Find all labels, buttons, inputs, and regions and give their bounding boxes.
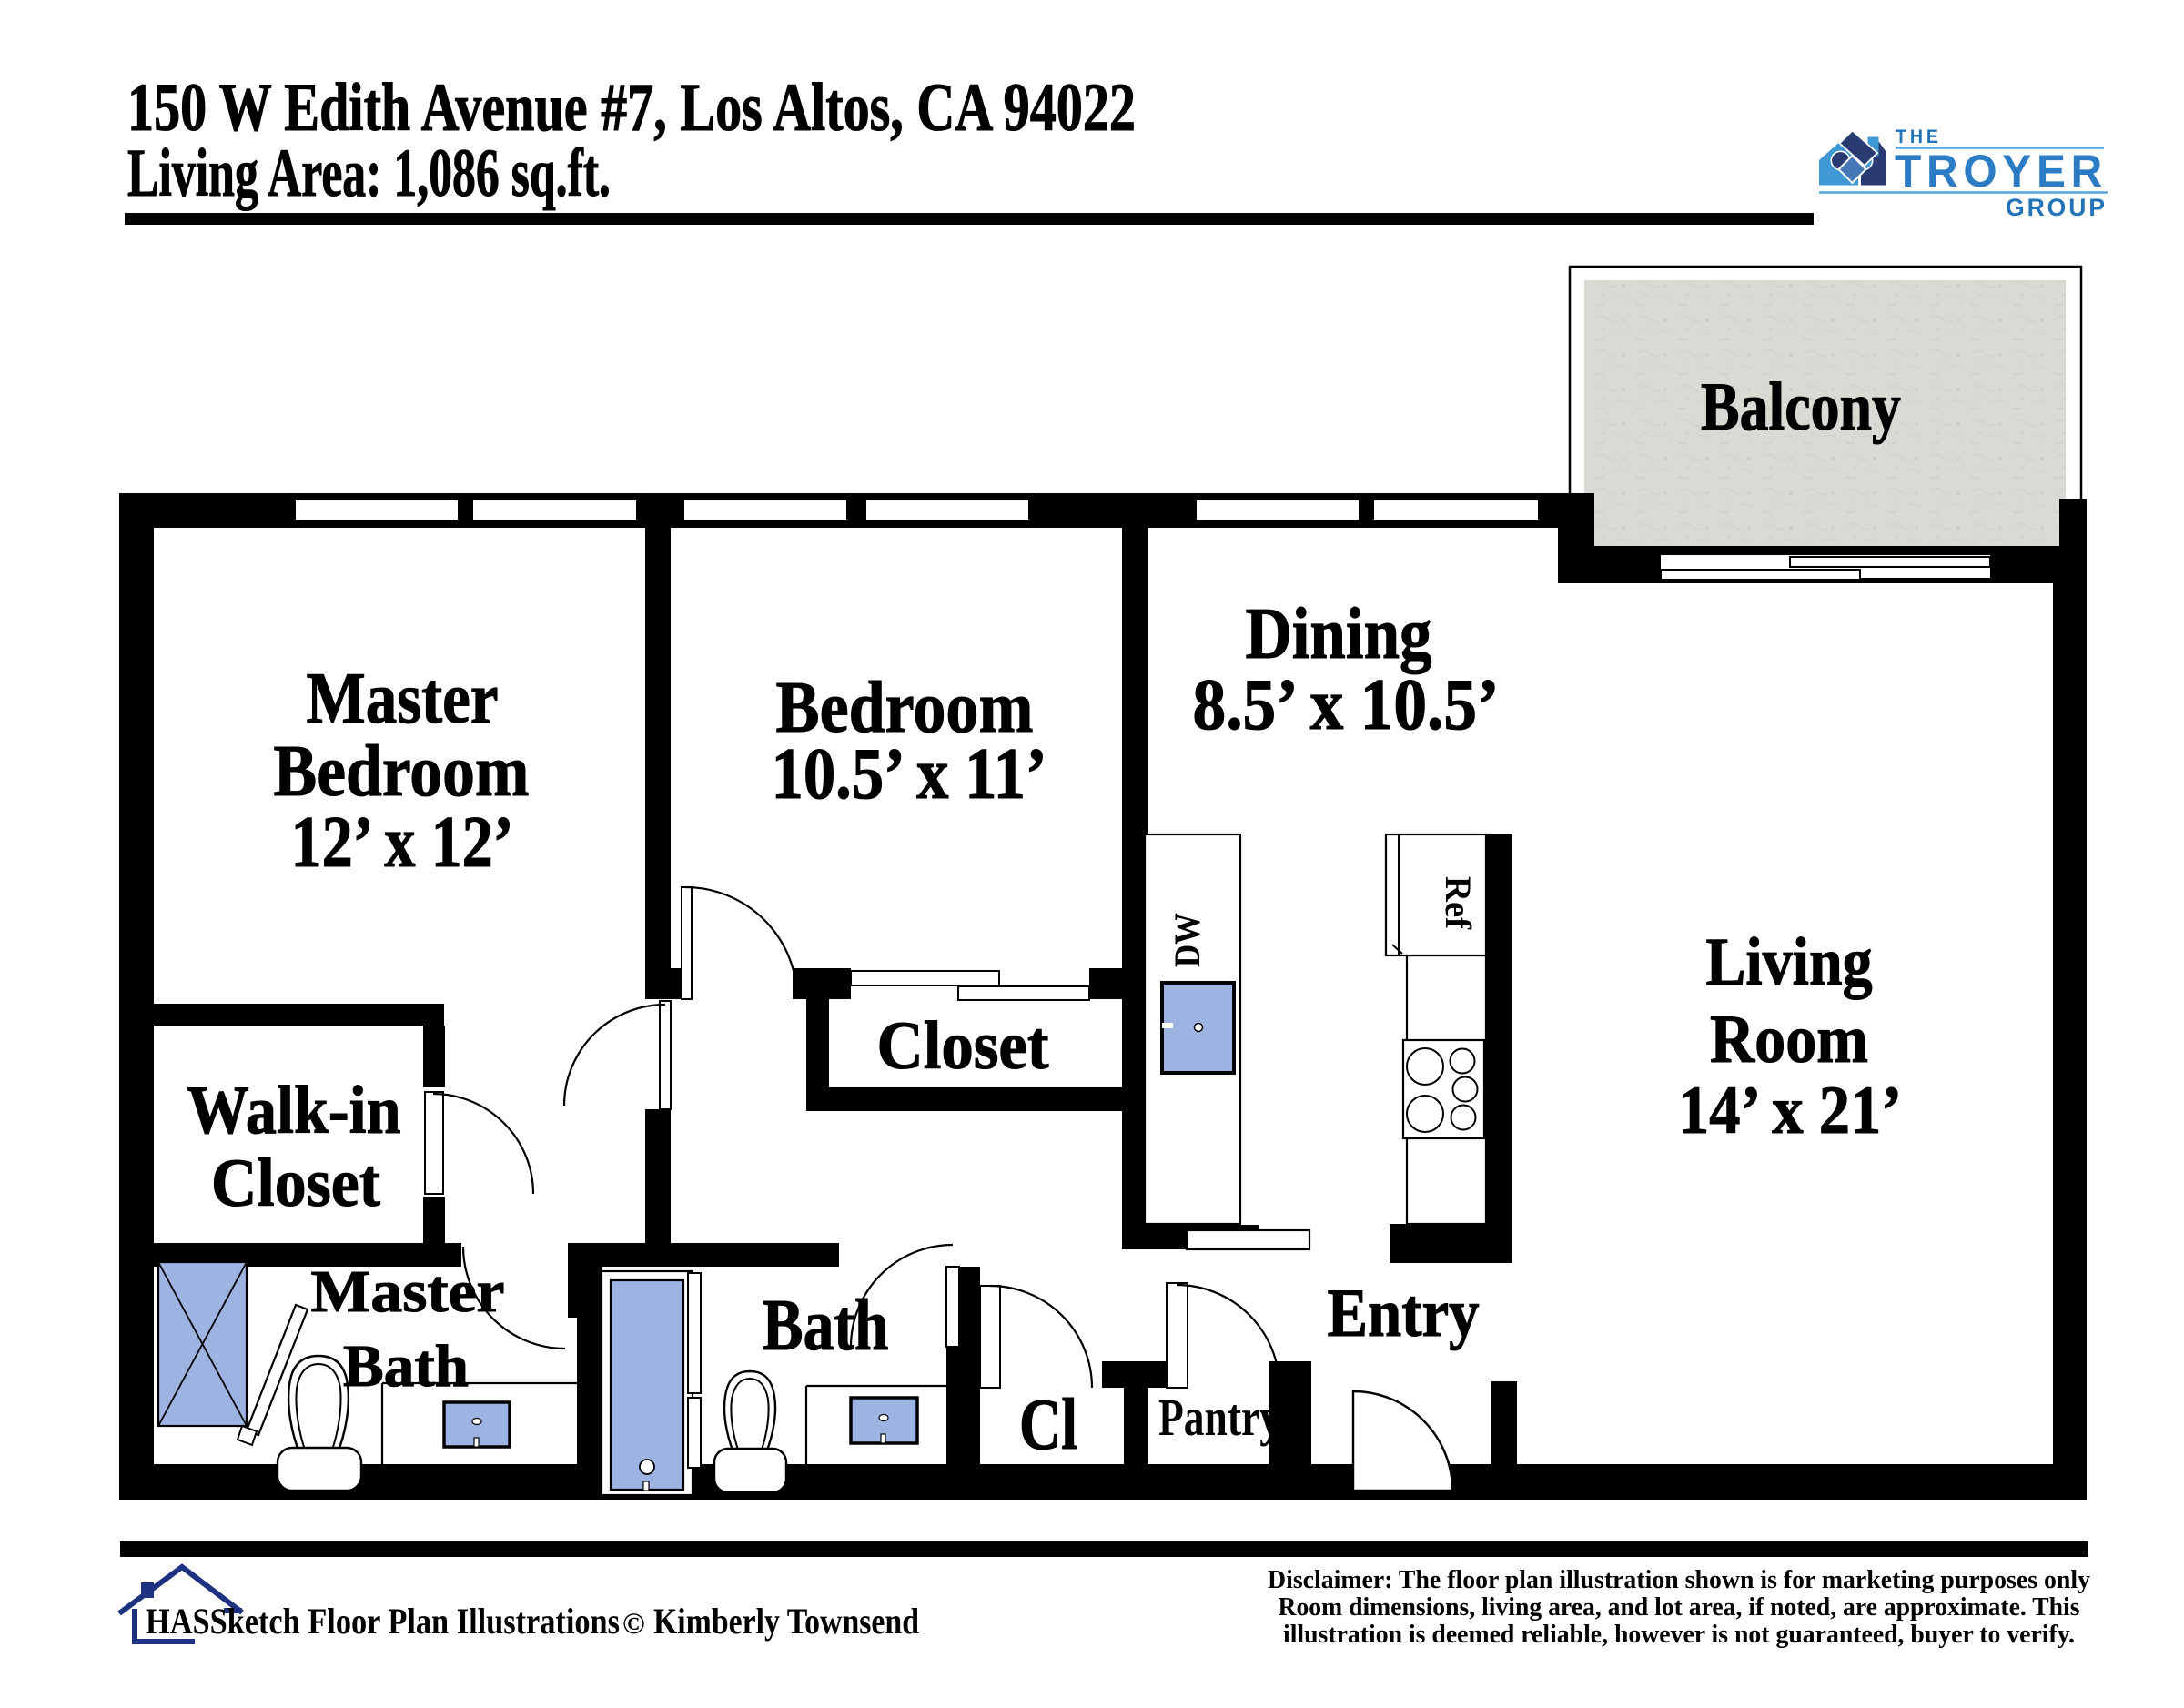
svg-text:Room dimensions, living area,: Room dimensions, living area, and lot ar… (1279, 1593, 2080, 1622)
svg-text:Bedroom: Bedroom (274, 732, 530, 812)
svg-text:Closet: Closet (877, 1008, 1049, 1084)
svg-text:150 W Edith Avenue #7, Los Alt: 150 W Edith Avenue #7, Los Altos, CA 940… (127, 70, 1136, 146)
svg-text:TROYER: TROYER (1895, 146, 2108, 197)
svg-text:14’ x 21’: 14’ x 21’ (1678, 1073, 1902, 1148)
svg-text:©: © (622, 1608, 645, 1641)
svg-text:illustration is deemed reliabl: illustration is deemed reliable, however… (1283, 1621, 2075, 1649)
svg-text:Living: Living (1706, 925, 1873, 1000)
svg-text:T H E: T H E (1896, 126, 1938, 147)
svg-text:8.5’ x 10.5’: 8.5’ x 10.5’ (1193, 665, 1500, 745)
svg-text:Bath: Bath (763, 1286, 889, 1366)
svg-text:Bath: Bath (343, 1333, 469, 1400)
svg-text:10.5’ x 11’: 10.5’ x 11’ (772, 734, 1047, 814)
svg-text:Closet: Closet (211, 1146, 380, 1221)
svg-text:Living Area: 1,086 sq.ft.: Living Area: 1,086 sq.ft. (127, 136, 611, 211)
svg-text:Balcony: Balcony (1701, 369, 1901, 445)
svg-text:Master: Master (311, 1258, 505, 1325)
svg-text:Master: Master (307, 659, 499, 739)
svg-text:Dining: Dining (1246, 594, 1432, 674)
svg-text:DW: DW (1167, 913, 1208, 967)
svg-text:GROUP: GROUP (2006, 194, 2108, 221)
svg-text:Entry: Entry (1328, 1276, 1480, 1351)
svg-text:Ref: Ref (1438, 876, 1479, 930)
svg-text:Cl: Cl (1019, 1385, 1077, 1465)
svg-text:HASSketch Floor Plan Illustrat: HASSketch Floor Plan Illustrations (146, 1601, 620, 1642)
svg-text:12’ x 12’: 12’ x 12’ (291, 803, 514, 883)
svg-text:Room: Room (1710, 1002, 1868, 1077)
svg-text:Kimberly Townsend: Kimberly Townsend (653, 1601, 919, 1642)
svg-text:Walk-in: Walk-in (187, 1073, 401, 1148)
svg-text:Pantry: Pantry (1158, 1388, 1280, 1447)
svg-text:Disclaimer: The floor plan ill: Disclaimer: The floor plan illustration … (1268, 1566, 2090, 1594)
